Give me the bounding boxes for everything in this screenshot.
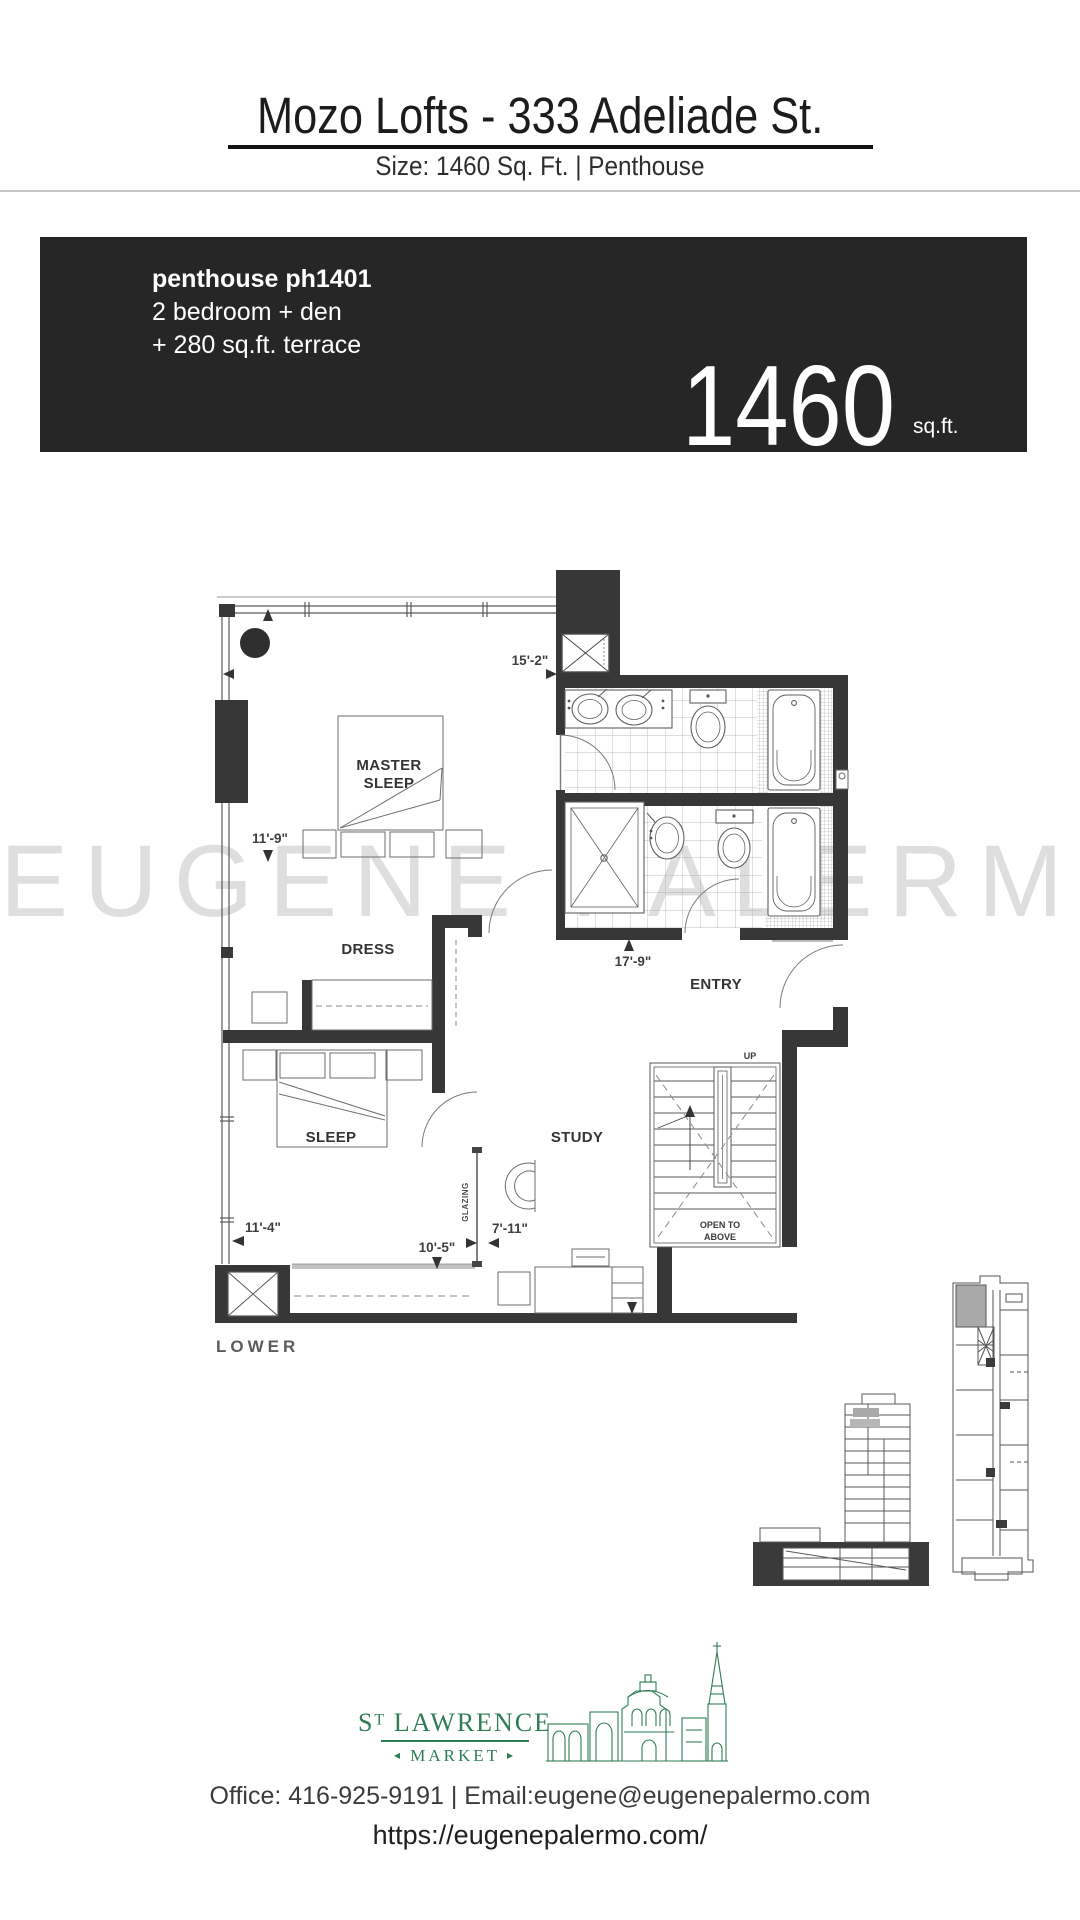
room-label-sleep: SLEEP <box>306 1129 357 1146</box>
dim-study-width: 7'-11" <box>492 1221 528 1236</box>
dress-closet <box>252 980 432 1030</box>
key-plan <box>953 1276 1033 1580</box>
room-label-study: STUDY <box>551 1129 603 1146</box>
room-label-dress: DRESS <box>341 941 394 958</box>
market-illustration <box>546 1642 728 1761</box>
glazing-label: GLAZING <box>461 1182 470 1222</box>
building-elevation <box>753 1394 929 1586</box>
dim-master-width: 15'-2" <box>512 653 549 668</box>
stairs-open-line2: ABOVE <box>704 1232 736 1242</box>
room-label-master-line1: MASTER <box>356 757 421 774</box>
stairs-open-line1: OPEN TO <box>700 1220 740 1230</box>
plan-walls <box>215 570 848 1323</box>
room-label-entry: ENTRY <box>690 976 742 993</box>
dim-hall: 17'-9" <box>615 954 652 969</box>
dim-sill: 10'-5" <box>419 1240 456 1255</box>
flyer-page: Mozo Lofts - 333 Adeliade St. Size: 1460… <box>0 0 1080 1920</box>
room-label-master-line2: SLEEP <box>364 775 415 792</box>
level-label: LOWER <box>216 1337 299 1356</box>
window-walls <box>217 597 556 1264</box>
floorplan-drawing: MASTER SLEEP DRESS SLEEP STUDY ENTRY 15'… <box>0 0 1080 1920</box>
dim-sleep-width: 11'-4" <box>245 1220 281 1235</box>
study-furniture <box>498 1160 643 1314</box>
dim-master-depth: 11'-9" <box>252 831 288 846</box>
stairs-up-label: UP <box>744 1051 757 1061</box>
